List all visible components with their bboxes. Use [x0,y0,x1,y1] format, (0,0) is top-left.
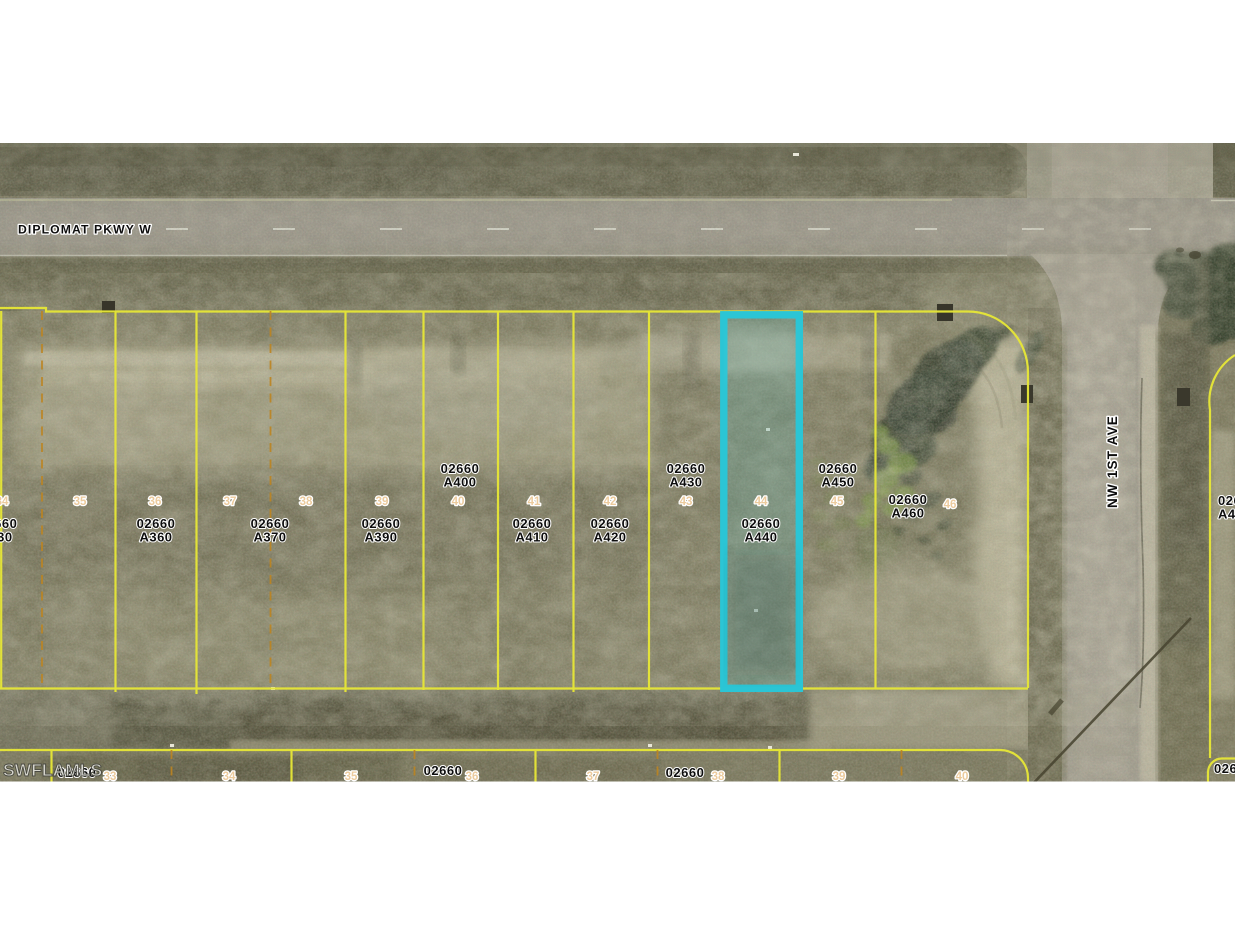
svg-text:A420: A420 [593,530,626,545]
svg-text:40: 40 [956,771,969,783]
svg-text:A390: A390 [364,530,397,545]
svg-text:37: 37 [224,496,237,508]
svg-text:33: 33 [104,771,117,783]
svg-text:A400: A400 [443,475,476,490]
svg-text:A430: A430 [669,475,702,490]
svg-text:42: 42 [604,496,617,508]
svg-text:A360: A360 [139,530,172,545]
svg-text:SWFLAMLS: SWFLAMLS [3,760,102,780]
svg-text:35: 35 [74,496,87,508]
svg-text:36: 36 [466,771,479,783]
svg-text:NW 1ST AVE: NW 1ST AVE [1105,415,1120,508]
svg-text:46: 46 [944,499,957,511]
svg-text:40: 40 [452,496,465,508]
svg-text:41: 41 [528,496,541,508]
svg-text:38: 38 [300,496,313,508]
svg-text:02660: 02660 [424,763,463,778]
svg-text:DIPLOMAT PKWY W: DIPLOMAT PKWY W [18,223,152,237]
svg-text:34: 34 [223,771,236,783]
svg-text:35: 35 [345,771,358,783]
svg-text:A330: A330 [0,530,13,545]
svg-text:34: 34 [0,496,9,508]
svg-text:39: 39 [833,771,846,783]
svg-text:02660: 02660 [1214,761,1235,776]
svg-text:A460: A460 [891,506,924,521]
svg-text:A440: A440 [744,530,777,545]
svg-text:39: 39 [376,496,389,508]
svg-text:A470: A470 [1218,507,1235,522]
svg-text:A410: A410 [515,530,548,545]
svg-text:A450: A450 [821,475,854,490]
svg-text:38: 38 [712,771,725,783]
svg-text:02660: 02660 [666,765,705,780]
svg-text:36: 36 [149,496,162,508]
svg-text:37: 37 [587,771,600,783]
svg-text:A370: A370 [253,530,286,545]
svg-text:45: 45 [831,496,844,508]
svg-text:44: 44 [755,496,768,508]
svg-text:43: 43 [680,496,693,508]
